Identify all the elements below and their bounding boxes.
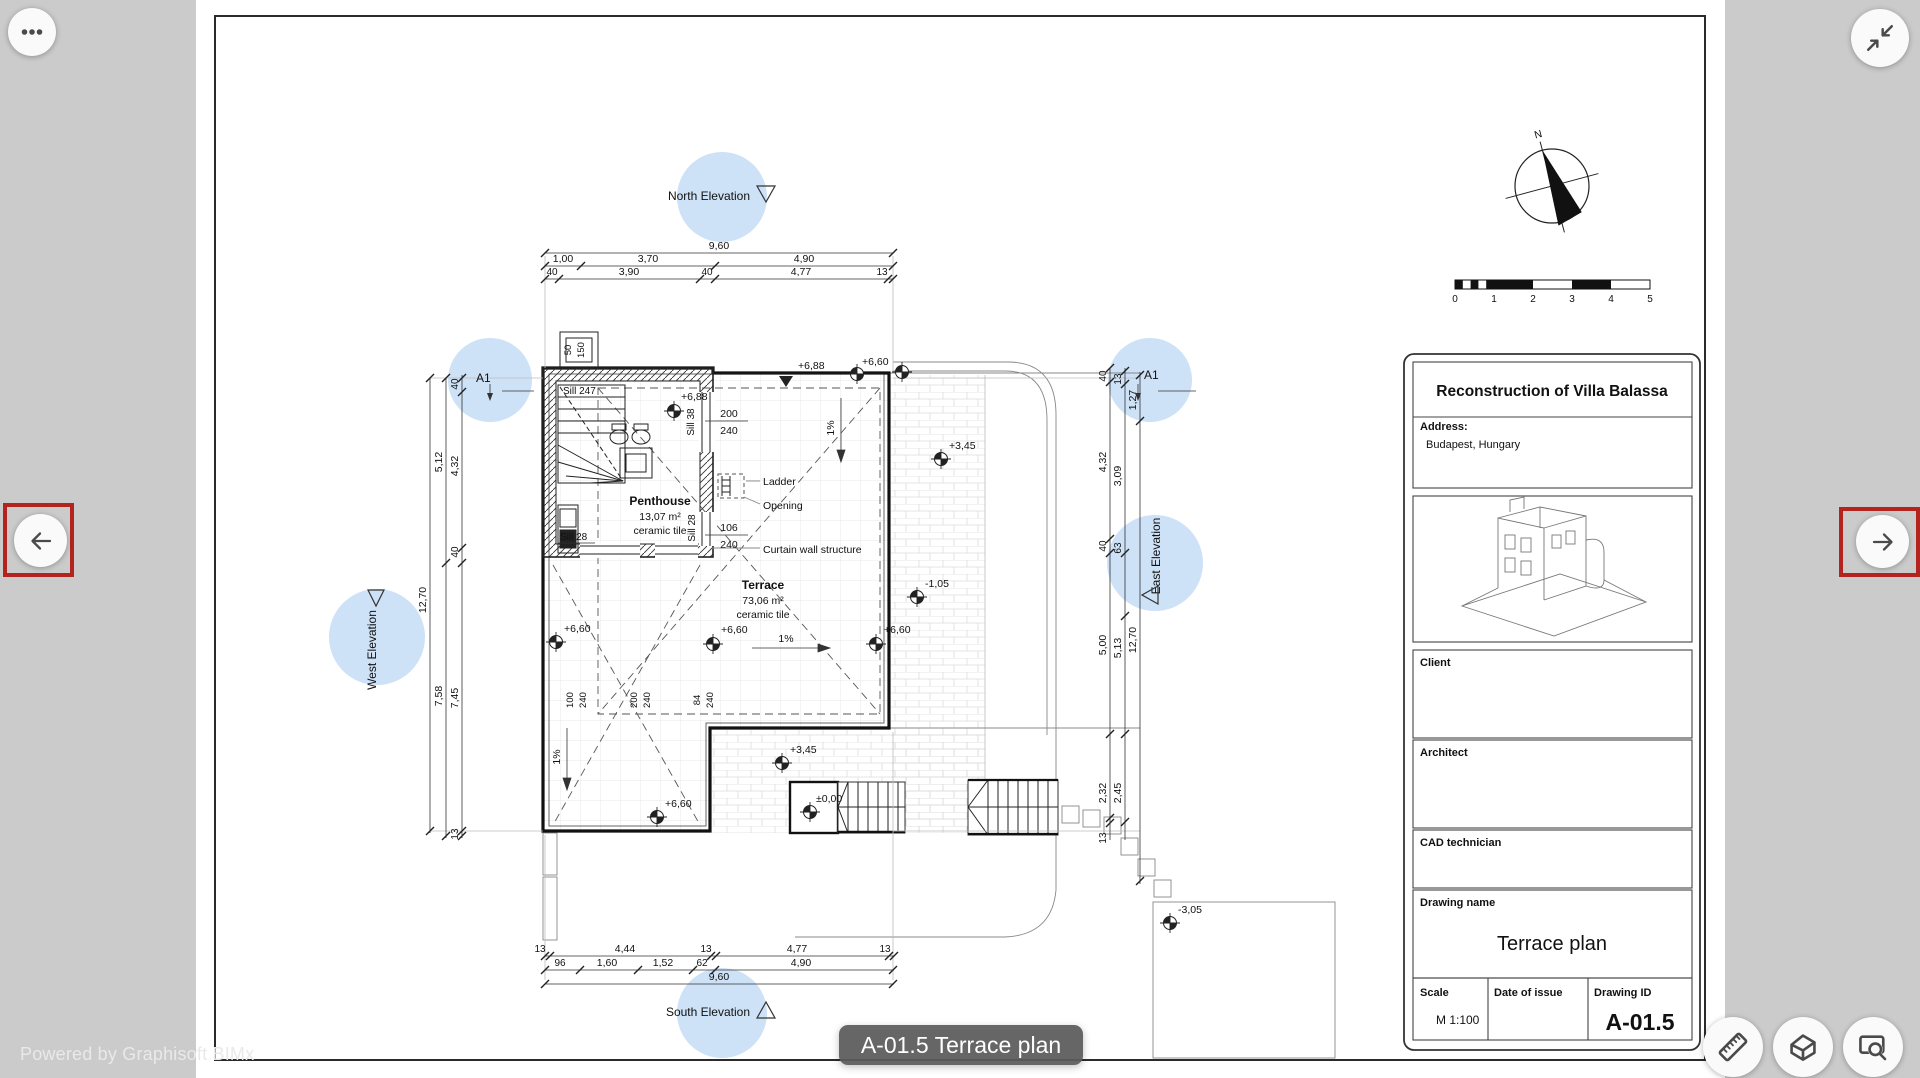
dim: 50 [563,345,574,356]
drawing-name-label: Drawing name [1420,897,1495,909]
dim: 63 [1113,542,1124,554]
sill-label: Sill 28 [687,514,698,542]
dim: 4,77 [787,943,808,955]
house-3d-icon [1787,1031,1819,1063]
level: +3,45 [949,440,976,452]
dim: 9,60 [709,971,730,983]
section-label: A1 [1144,368,1159,382]
drawing-title-tooltip: A-01.5 Terrace plan [839,1025,1083,1065]
room-name: Terrace [742,578,785,592]
screen-magnifier-icon [1857,1031,1889,1063]
dim: 40 [1098,370,1109,382]
dim: 1,60 [597,957,618,969]
dim: 12,70 [417,587,429,613]
dim: 4,90 [794,253,815,265]
dim: 240 [642,692,653,708]
drawing-id-label: Drawing ID [1594,987,1652,999]
dim: 150 [576,342,587,358]
dim: 5,13 [1112,638,1124,659]
dim: 1,27 [1127,390,1139,411]
scale-bar: 0 1 2 3 4 5 [1452,280,1653,305]
marker-label: South Elevation [666,1005,750,1019]
zoom-window-button[interactable] [1843,1017,1903,1077]
sill-label: Sill 247 [563,386,596,397]
previous-drawing-button[interactable] [14,514,67,567]
dim: 40 [701,267,713,278]
annotation: Curtain wall structure [763,544,862,556]
architect-label: Architect [1420,747,1468,759]
ruler-icon [1717,1031,1749,1063]
dim: 1,00 [553,253,574,265]
dim: 13 [879,944,891,955]
date-label: Date of issue [1494,987,1562,999]
terrace-plan-drawing: 9,60 1,00 3,70 4,90 40 3,90 40 4,77 13 1… [0,0,1920,1078]
annotation: Ladder [763,476,796,488]
marker-label: West Elevation [365,610,379,690]
sill-label: Sill 38 [686,408,697,436]
room-area: 73,06 m² [742,595,784,607]
address-value: Budapest, Hungary [1426,439,1521,451]
dim: 13 [700,944,712,955]
dim: 84 [692,695,703,706]
dim: 5,12 [433,452,445,473]
scale-tick: 5 [1647,294,1653,305]
dim: 13 [876,267,888,278]
section-label: A1 [476,371,491,385]
slope-label: 1% [825,420,837,435]
level: +6,60 [564,623,591,635]
dim: 240 [705,692,716,708]
dim: 100 [565,692,576,708]
stepping-stones [1062,806,1171,897]
client-label: Client [1420,657,1451,669]
level: +6,60 [721,624,748,636]
dim: 13 [450,828,461,840]
level: -1,05 [925,578,949,590]
marker-label: North Elevation [668,189,750,203]
project-title: Reconstruction of Villa Balassa [1436,383,1668,400]
scale-label: Scale [1420,987,1449,999]
dim: 12,70 [1127,627,1139,653]
scale-value: M 1:100 [1436,1013,1480,1027]
dim: 13 [1113,373,1124,385]
model-view-button[interactable] [1773,1017,1833,1077]
scale-tick: 4 [1608,294,1614,305]
room-finish: ceramic tile [633,525,686,537]
dim: 7,58 [433,686,445,707]
floor-plan [430,256,1335,1058]
sill-label: Sill 28 [560,532,588,543]
level: +6,60 [862,356,889,368]
scale-tick: 1 [1491,294,1497,305]
ellipsis-icon [17,17,47,47]
window-size: 240 [720,539,738,551]
dim: 200 [629,692,640,708]
dim: 40 [546,267,558,278]
level: ±0,00 [816,793,842,805]
dim: 2,45 [1112,783,1124,804]
marker-label: East Elevation [1149,518,1163,595]
north-letter: N [1533,128,1543,142]
level: +3,45 [790,744,817,756]
level: +6,88 [798,360,825,372]
dim: 7,45 [449,688,461,709]
dim: 4,77 [791,266,812,278]
dim: 3,70 [638,253,659,265]
scale-tick: 3 [1569,294,1575,305]
collapse-arrows-icon [1865,23,1895,53]
level: -3,05 [1178,904,1202,916]
drawing-id: A-01.5 [1605,1009,1674,1035]
level: +6,88 [681,391,708,403]
arrow-left-icon [26,526,56,556]
dim: 96 [554,958,566,969]
collapse-button[interactable] [1851,9,1909,67]
dim: 4,90 [791,957,812,969]
level: +6,60 [884,624,911,636]
dim: 240 [578,692,589,708]
drawing-name: Terrace plan [1497,933,1607,955]
window-size: 240 [720,425,738,437]
dim: 40 [450,546,461,558]
window-size: 200 [720,408,738,420]
window-size: 106 [720,522,738,534]
room-name: Penthouse [629,494,691,508]
dim: 40 [450,378,461,390]
dim: 4,32 [449,456,461,477]
scale-tick: 0 [1452,294,1458,305]
dim: 40 [1098,540,1109,552]
menu-button[interactable] [8,8,56,56]
dim: 4,32 [1097,452,1109,473]
north-compass: N [1490,117,1610,245]
room-area: 13,07 m² [639,511,681,523]
dim: 4,44 [615,943,636,955]
annotation: Opening [763,500,803,512]
slope-label: 1% [778,633,793,645]
arrow-right-icon [1868,527,1898,557]
level: +6,60 [665,798,692,810]
dim: 5,00 [1097,635,1109,656]
slope-label: 1% [551,749,563,764]
dim: 3,09 [1112,466,1124,487]
room-finish: ceramic tile [736,609,789,621]
dim: 13 [534,944,546,955]
powered-by-text: Powered by Graphisoft BIMx [20,1044,254,1065]
cad-label: CAD technician [1420,837,1502,849]
address-label: Address: [1420,421,1468,433]
next-drawing-button[interactable] [1856,515,1909,568]
dim: 3,90 [619,266,640,278]
dim: 13 [1098,832,1109,844]
scale-tick: 2 [1530,294,1536,305]
dim: 1,52 [653,957,674,969]
title-block: Reconstruction of Villa Balassa Address:… [1404,354,1700,1050]
dim: 2,32 [1097,783,1109,804]
dim: 62 [696,958,708,969]
dim: 9,60 [709,240,730,252]
measure-button[interactable] [1703,1017,1763,1077]
